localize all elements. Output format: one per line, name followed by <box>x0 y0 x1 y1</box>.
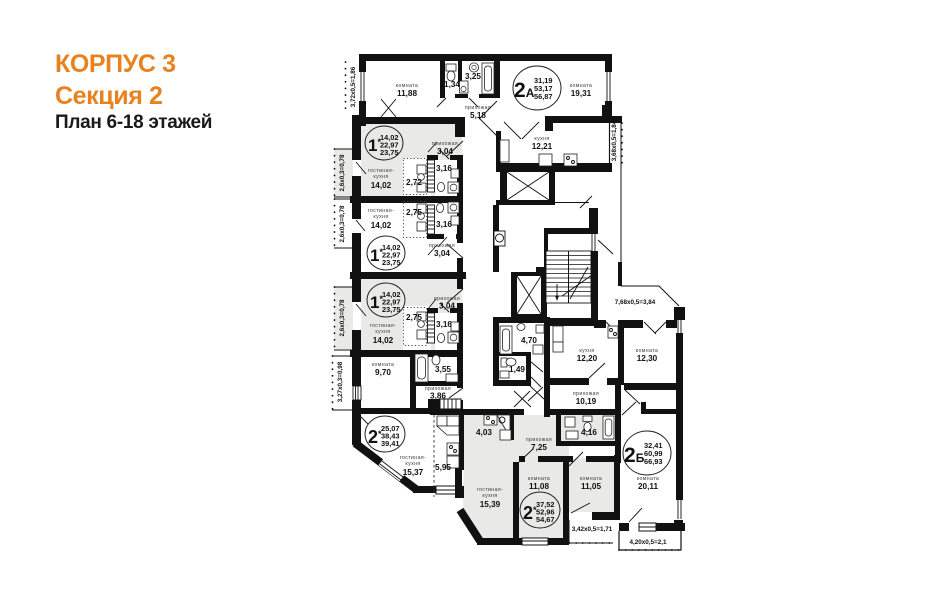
svg-text:3,04: 3,04 <box>439 302 455 311</box>
svg-text:5,95: 5,95 <box>435 463 451 472</box>
svg-text:3,16: 3,16 <box>436 164 452 173</box>
svg-text:3,04: 3,04 <box>434 249 450 258</box>
svg-text:23,75: 23,75 <box>382 305 401 314</box>
svg-text:кухня: кухня <box>405 461 420 467</box>
svg-text:2,75: 2,75 <box>406 313 422 322</box>
svg-text:2,6х0,3=0,78: 2,6х0,3=0,78 <box>339 205 346 242</box>
svg-text:11,88: 11,88 <box>397 89 417 98</box>
svg-text:11,08: 11,08 <box>529 482 549 491</box>
svg-text:23,75: 23,75 <box>380 148 399 157</box>
svg-text:20,11: 20,11 <box>638 482 658 491</box>
svg-text:14,02: 14,02 <box>373 336 394 345</box>
svg-text:2,6х0,3=0,78: 2,6х0,3=0,78 <box>339 299 346 336</box>
svg-text:кухня: кухня <box>373 174 388 180</box>
svg-text:3,86: 3,86 <box>430 392 446 401</box>
svg-text:39,41: 39,41 <box>381 439 400 448</box>
svg-text:10,19: 10,19 <box>576 397 597 406</box>
svg-text:7,25: 7,25 <box>531 443 547 452</box>
svg-text:23,75: 23,75 <box>382 258 401 267</box>
svg-text:12,30: 12,30 <box>637 354 658 363</box>
svg-text:54,67: 54,67 <box>536 515 555 524</box>
svg-text:14,02: 14,02 <box>371 181 392 190</box>
svg-text:3,04: 3,04 <box>437 147 453 156</box>
svg-text:2,75: 2,75 <box>406 208 422 217</box>
svg-text:3,16: 3,16 <box>436 220 452 229</box>
svg-text:12,21: 12,21 <box>532 142 553 151</box>
svg-text:кухня: кухня <box>482 493 497 499</box>
svg-text:4,70: 4,70 <box>521 336 537 345</box>
svg-text:11,05: 11,05 <box>581 482 601 491</box>
svg-text:15,37: 15,37 <box>403 468 424 477</box>
svg-text:7,68х0,5=3,84: 7,68х0,5=3,84 <box>615 299 656 306</box>
svg-text:3,25: 3,25 <box>465 72 481 81</box>
svg-text:4,03: 4,03 <box>476 428 492 437</box>
svg-text:3,27х0,3=0,98: 3,27х0,3=0,98 <box>337 361 344 402</box>
svg-text:1,49: 1,49 <box>509 365 525 374</box>
svg-text:9,70: 9,70 <box>375 368 391 377</box>
svg-text:1,34: 1,34 <box>444 80 460 89</box>
svg-text:2,72: 2,72 <box>406 178 422 187</box>
svg-text:3,42х0,5=1,71: 3,42х0,5=1,71 <box>572 526 613 533</box>
svg-text:66,93: 66,93 <box>644 457 663 466</box>
svg-text:4,20х0,5=2,1: 4,20х0,5=2,1 <box>630 539 667 546</box>
svg-text:3,72х0,5=1,86: 3,72х0,5=1,86 <box>350 66 357 107</box>
svg-text:3,68х0,5=1,84: 3,68х0,5=1,84 <box>611 120 618 161</box>
svg-text:4,16: 4,16 <box>581 428 597 437</box>
svg-text:кухня: кухня <box>373 214 388 220</box>
svg-text:2,6х0,3=0,78: 2,6х0,3=0,78 <box>339 154 346 191</box>
svg-text:56,87: 56,87 <box>534 92 553 101</box>
svg-text:3,16: 3,16 <box>436 320 452 329</box>
svg-text:3,55: 3,55 <box>435 365 451 374</box>
svg-text:кухня: кухня <box>375 329 390 335</box>
svg-text:19,31: 19,31 <box>571 89 592 98</box>
svg-text:14,02: 14,02 <box>371 221 392 230</box>
svg-text:5,18: 5,18 <box>470 111 486 120</box>
svg-text:12,20: 12,20 <box>577 354 598 363</box>
svg-text:15,39: 15,39 <box>480 500 501 509</box>
